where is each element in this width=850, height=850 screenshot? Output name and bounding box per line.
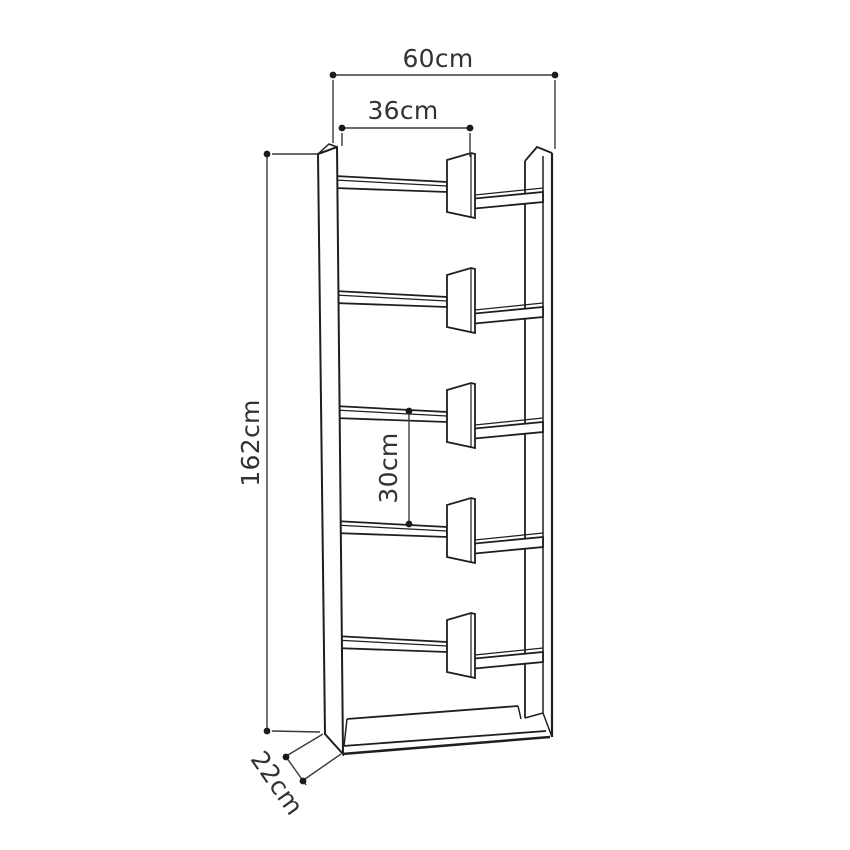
dimension-depth: 22cm [245, 734, 341, 821]
left-shelf [335, 291, 447, 307]
dimension-dot [406, 408, 413, 415]
left-side-panel [318, 144, 343, 754]
height-dimension-label: 162cm [236, 399, 265, 486]
base-panel [342, 706, 550, 754]
dimension-dot [330, 72, 337, 79]
dimension-width: 60cm [330, 44, 559, 149]
dimension-dot [406, 521, 413, 528]
shelf-levels [335, 153, 543, 678]
bookcase-diagram: 60cm 36cm 162cm 30cm 22cm [0, 0, 850, 850]
diagram-page: 60cm 36cm 162cm 30cm 22cm [0, 0, 850, 850]
inner-width-dimension-label: 36cm [367, 96, 438, 125]
width-dimension-label: 60cm [402, 44, 473, 73]
left-shelf [335, 406, 447, 422]
dimension-dot [264, 151, 271, 158]
depth-dimension-label: 22cm [245, 746, 310, 821]
left-shelf [335, 521, 447, 537]
dimension-dot [300, 778, 307, 785]
dimension-shelf-gap: 30cm [374, 408, 412, 528]
dimension-dot [264, 728, 271, 735]
dimension-inner-width: 36cm [339, 96, 474, 157]
left-shelf [335, 636, 447, 652]
dimension-dot [552, 72, 559, 79]
dimension-dot [467, 125, 474, 132]
dimension-dot [283, 754, 290, 761]
left-shelf [335, 176, 447, 192]
dimension-height: 162cm [236, 151, 320, 735]
shelf-gap-dimension-label: 30cm [374, 432, 403, 503]
dimension-dot [339, 125, 346, 132]
